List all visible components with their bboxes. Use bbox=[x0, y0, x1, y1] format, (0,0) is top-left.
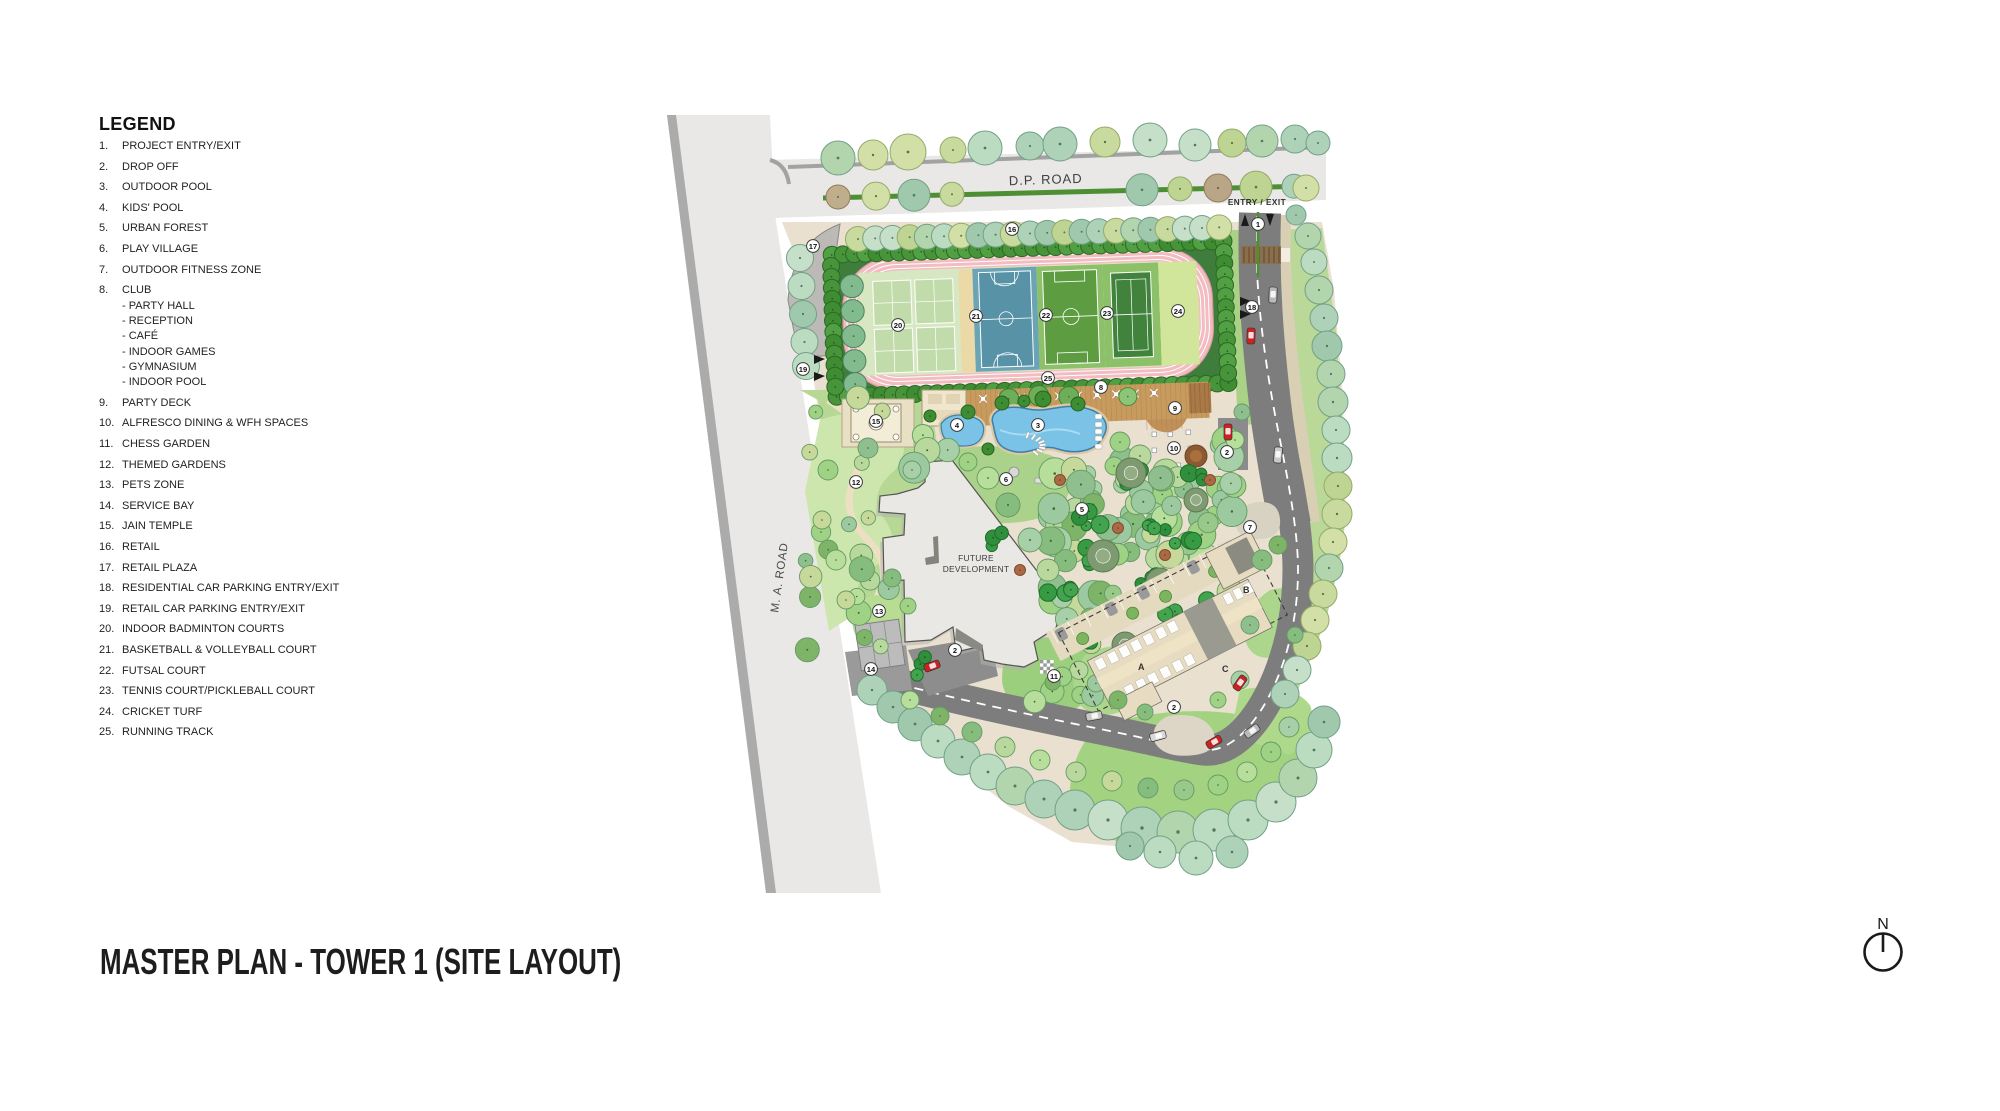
svg-text:6: 6 bbox=[1004, 475, 1008, 484]
svg-text:9: 9 bbox=[1173, 404, 1177, 413]
svg-text:2: 2 bbox=[1172, 703, 1176, 712]
svg-text:19: 19 bbox=[799, 365, 807, 374]
svg-text:20: 20 bbox=[894, 321, 902, 330]
svg-text:13: 13 bbox=[875, 607, 883, 616]
svg-text:24: 24 bbox=[1174, 307, 1183, 316]
svg-text:D.P. ROAD: D.P. ROAD bbox=[1009, 171, 1083, 189]
svg-text:N: N bbox=[1877, 916, 1889, 933]
svg-text:FUTURE: FUTURE bbox=[958, 553, 994, 563]
svg-text:ENTRY / EXIT: ENTRY / EXIT bbox=[1228, 198, 1286, 207]
svg-text:2: 2 bbox=[1225, 448, 1229, 457]
svg-text:25: 25 bbox=[1044, 374, 1053, 383]
svg-text:11: 11 bbox=[1050, 672, 1059, 681]
svg-text:B: B bbox=[1243, 585, 1250, 595]
svg-text:12: 12 bbox=[852, 478, 860, 487]
svg-text:10: 10 bbox=[1170, 444, 1178, 453]
svg-text:17: 17 bbox=[809, 242, 817, 251]
svg-text:7: 7 bbox=[1248, 523, 1252, 532]
svg-text:3: 3 bbox=[1036, 421, 1040, 430]
svg-text:A: A bbox=[1138, 662, 1145, 672]
svg-text:14: 14 bbox=[867, 665, 876, 674]
svg-text:2: 2 bbox=[953, 646, 957, 655]
svg-text:DEVELOPMENT: DEVELOPMENT bbox=[943, 564, 1010, 574]
svg-text:21: 21 bbox=[972, 312, 981, 321]
svg-text:15: 15 bbox=[872, 417, 881, 426]
svg-text:C: C bbox=[1222, 664, 1229, 674]
svg-text:23: 23 bbox=[1103, 309, 1111, 318]
svg-text:8: 8 bbox=[1099, 383, 1103, 392]
svg-text:22: 22 bbox=[1042, 311, 1050, 320]
svg-text:16: 16 bbox=[1008, 225, 1016, 234]
svg-text:18: 18 bbox=[1248, 303, 1256, 312]
